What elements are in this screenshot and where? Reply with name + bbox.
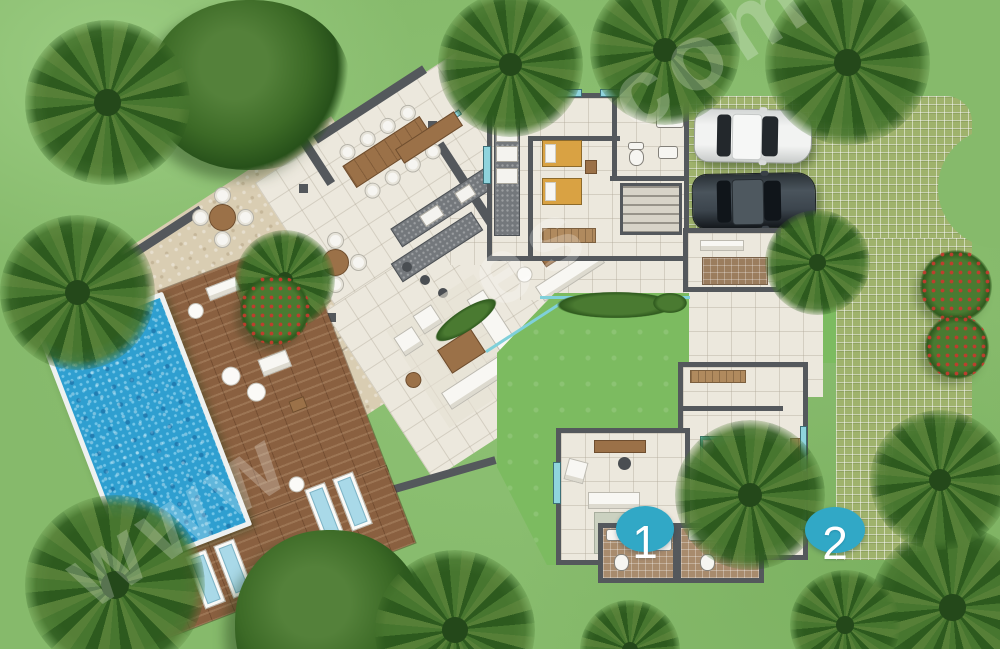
side-mirror bbox=[760, 171, 768, 176]
dining-chair bbox=[382, 167, 404, 189]
palm-tree bbox=[25, 20, 190, 185]
wardrobe bbox=[690, 370, 746, 383]
hedge bbox=[648, 290, 692, 316]
patio-chair bbox=[237, 209, 254, 226]
kitchen-appliance bbox=[496, 146, 518, 162]
entry-rug bbox=[702, 257, 768, 285]
windshield bbox=[762, 116, 779, 156]
cooktop bbox=[454, 184, 476, 205]
kitchen-appliance bbox=[496, 168, 518, 184]
unit-marker-2[interactable]: 2 bbox=[805, 507, 865, 553]
window bbox=[483, 146, 491, 184]
patio-chair bbox=[350, 254, 367, 271]
flowering-shrub bbox=[920, 250, 992, 322]
suite-wall bbox=[683, 406, 783, 411]
dining-chair bbox=[361, 180, 383, 202]
window bbox=[553, 462, 561, 504]
palm-tree bbox=[0, 215, 155, 370]
car-roof bbox=[732, 114, 763, 161]
flowering-shrub bbox=[240, 275, 310, 345]
desk bbox=[594, 440, 646, 453]
patio-table-set bbox=[190, 185, 256, 251]
patio-chair bbox=[214, 187, 231, 204]
desk-chair bbox=[618, 457, 631, 470]
bathroom-wall bbox=[610, 176, 688, 181]
side-mirror bbox=[758, 160, 766, 165]
bar-stool bbox=[402, 262, 412, 272]
round-table bbox=[209, 204, 236, 231]
nightstand bbox=[585, 160, 597, 174]
flowering-shrub bbox=[925, 315, 989, 379]
patio-chair bbox=[214, 231, 231, 248]
palm-tree bbox=[870, 410, 1000, 550]
bathroom-wall bbox=[612, 98, 617, 180]
palm-tree bbox=[765, 210, 870, 315]
staircase bbox=[620, 183, 682, 235]
sofa bbox=[588, 492, 640, 509]
pillar bbox=[299, 184, 308, 193]
palm-tree bbox=[580, 600, 680, 649]
palm-tree bbox=[675, 420, 825, 570]
car-roof bbox=[732, 179, 765, 226]
patio-chair bbox=[327, 232, 344, 249]
windshield bbox=[764, 181, 782, 221]
sink bbox=[658, 146, 678, 159]
entry-bench bbox=[700, 240, 744, 251]
car-rear-glass bbox=[717, 114, 732, 156]
marker-label: 2 bbox=[805, 520, 865, 566]
toilet bbox=[629, 149, 644, 166]
car-rear-glass bbox=[717, 180, 732, 222]
patio-chair bbox=[192, 209, 209, 226]
bed-orange bbox=[542, 140, 582, 167]
villa-site-plan: www es com 1 2 bbox=[0, 0, 1000, 649]
unit-marker-1[interactable]: 1 bbox=[616, 506, 674, 552]
side-mirror bbox=[759, 107, 767, 112]
marker-label: 1 bbox=[616, 519, 674, 565]
